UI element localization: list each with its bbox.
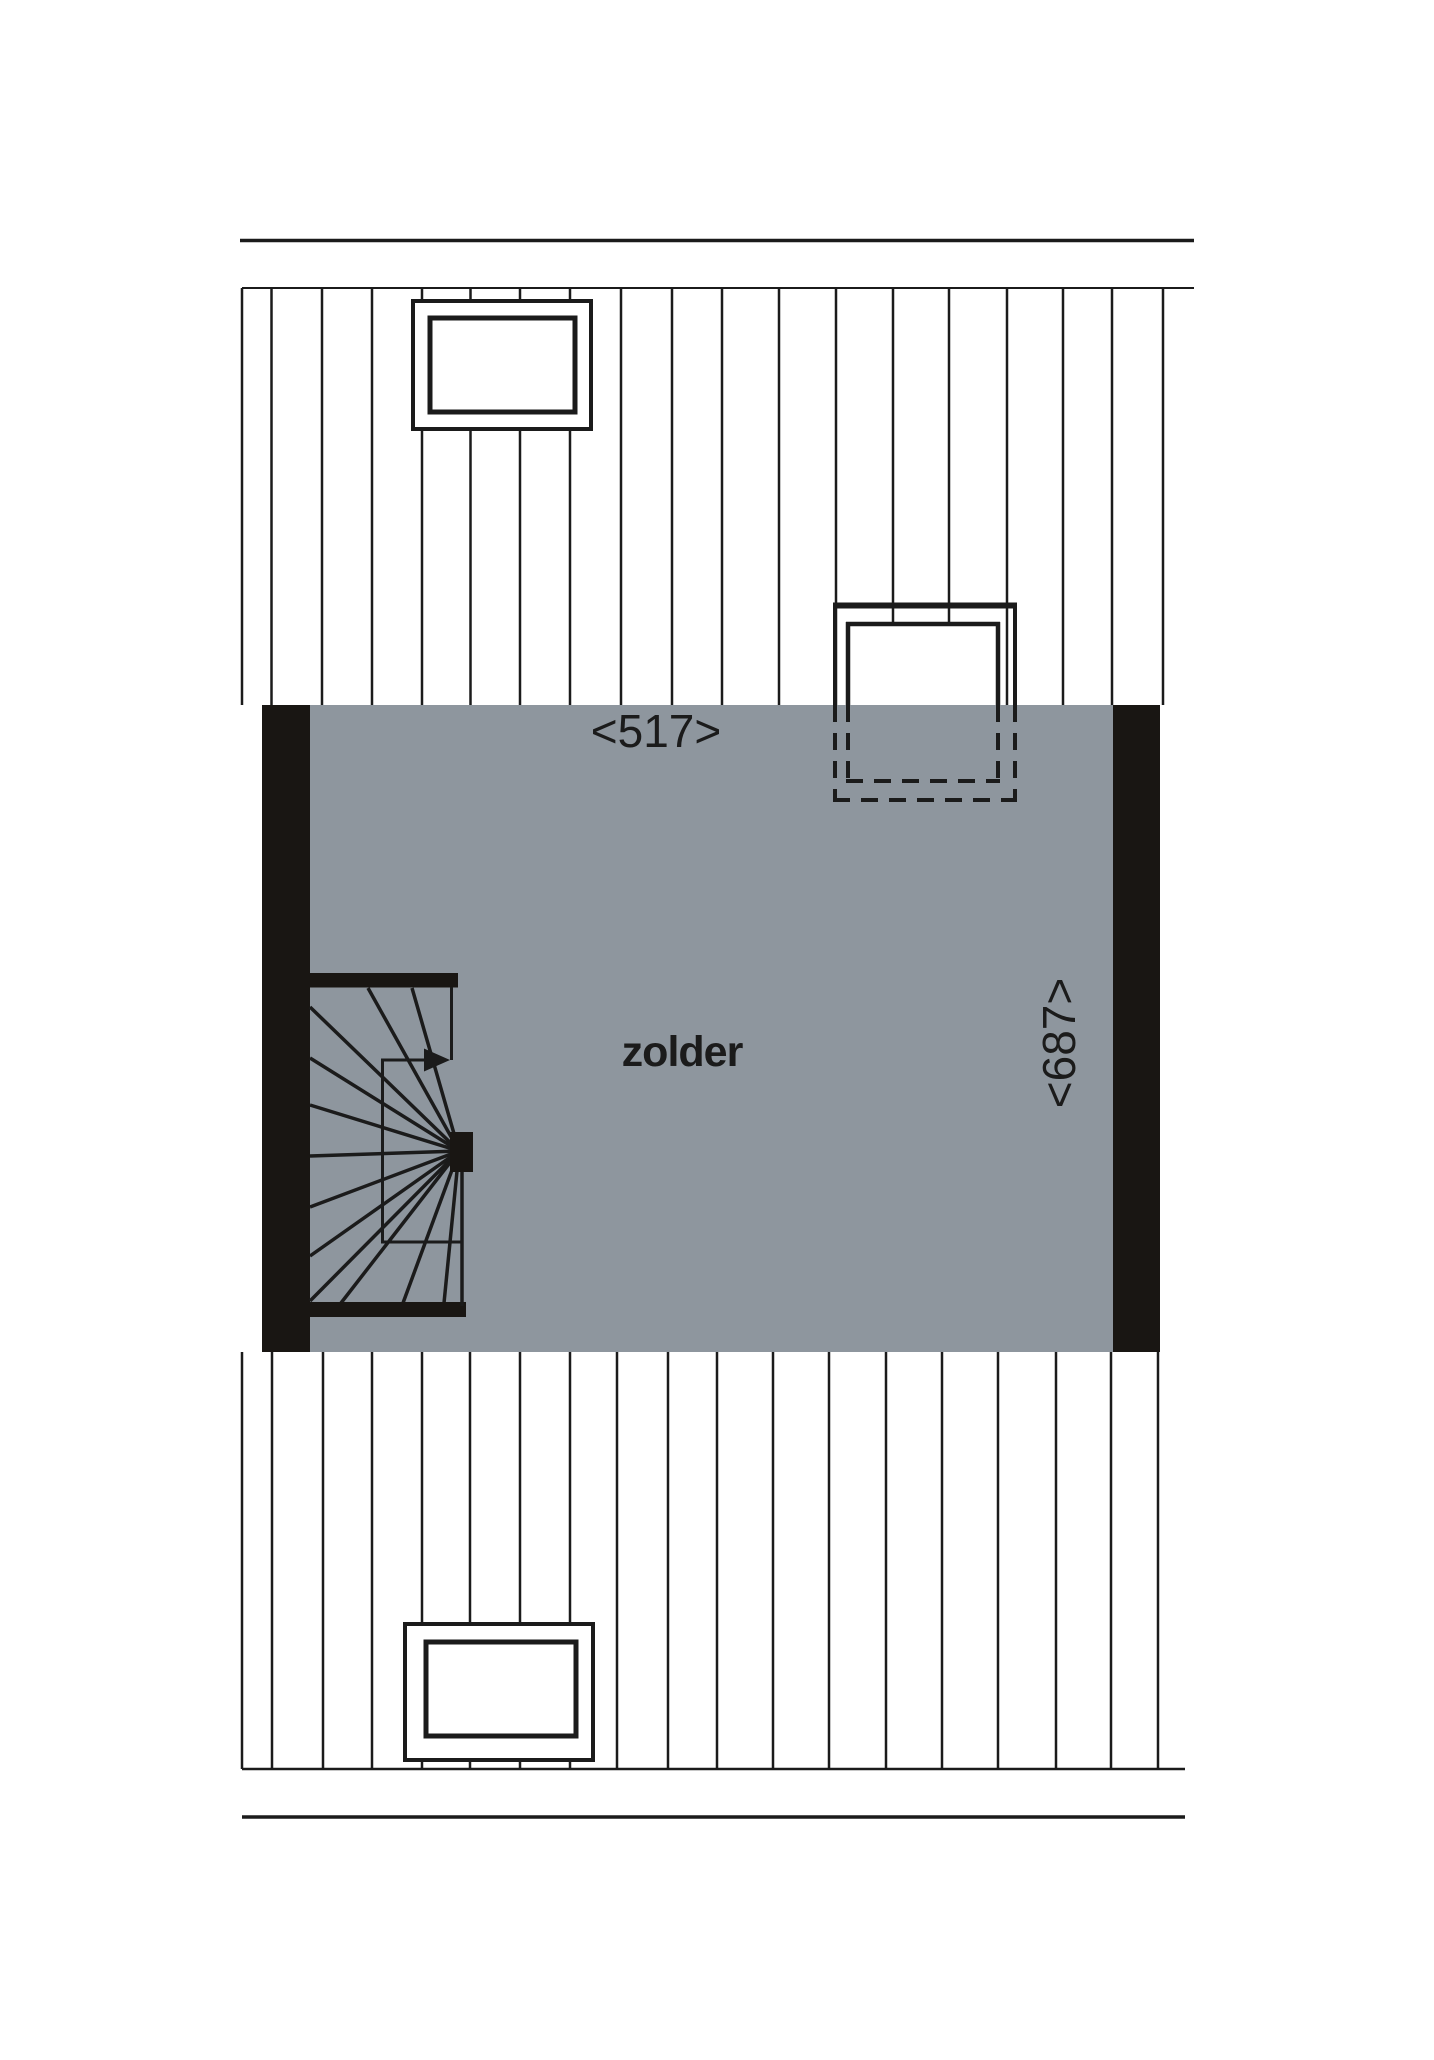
dimension-width-label: <517>: [591, 705, 721, 757]
lower-roof-plane: [242, 1352, 1185, 1817]
attic-floorplan: <517> zolder <687>: [0, 0, 1434, 2060]
stair-top-stringer: [310, 973, 458, 988]
dormer-inner-fill: [848, 622, 998, 705]
room-label: zolder: [622, 1028, 744, 1076]
upper-skylight: [413, 301, 591, 429]
left-wall: [262, 705, 310, 1352]
floorplan-canvas: <517> zolder <687>: [0, 0, 1434, 2060]
upper-skylight-inner-frame: [430, 318, 575, 412]
stair-newel-post: [450, 1132, 473, 1172]
upper-roof-planks: [242, 288, 1163, 705]
right-wall: [1113, 705, 1160, 1352]
stair-bottom-stringer: [310, 1302, 466, 1317]
lower-roof-planks: [242, 1352, 1158, 1769]
dimension-height-label: <687>: [1033, 978, 1085, 1108]
upper-roof-plane: [240, 241, 1194, 706]
lower-skylight: [405, 1624, 593, 1760]
lower-skylight-inner-frame: [426, 1642, 576, 1736]
